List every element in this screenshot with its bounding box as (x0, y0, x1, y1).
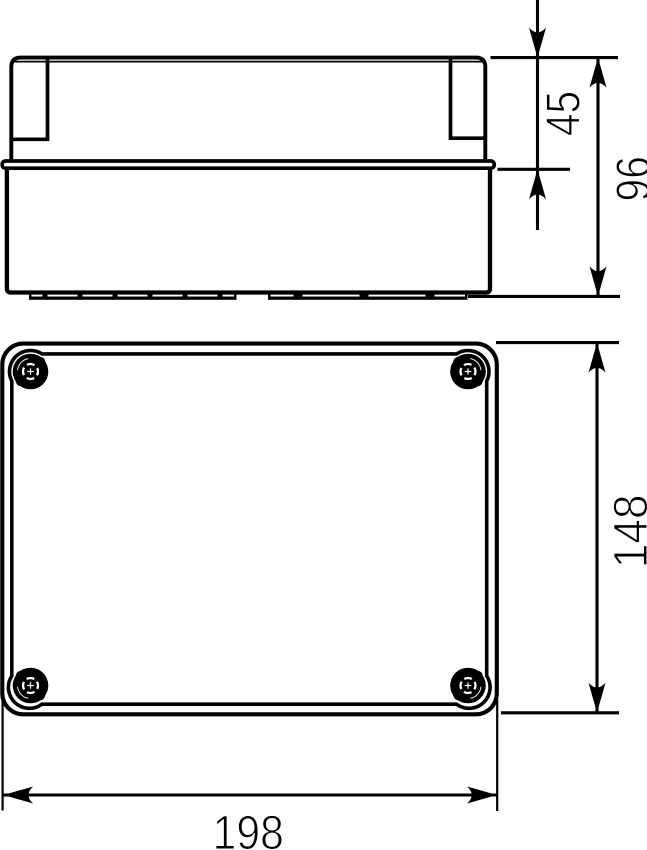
svg-text:148: 148 (603, 494, 647, 568)
svg-text:45: 45 (536, 91, 590, 136)
svg-text:96: 96 (606, 156, 647, 201)
svg-text:198: 198 (213, 806, 284, 850)
